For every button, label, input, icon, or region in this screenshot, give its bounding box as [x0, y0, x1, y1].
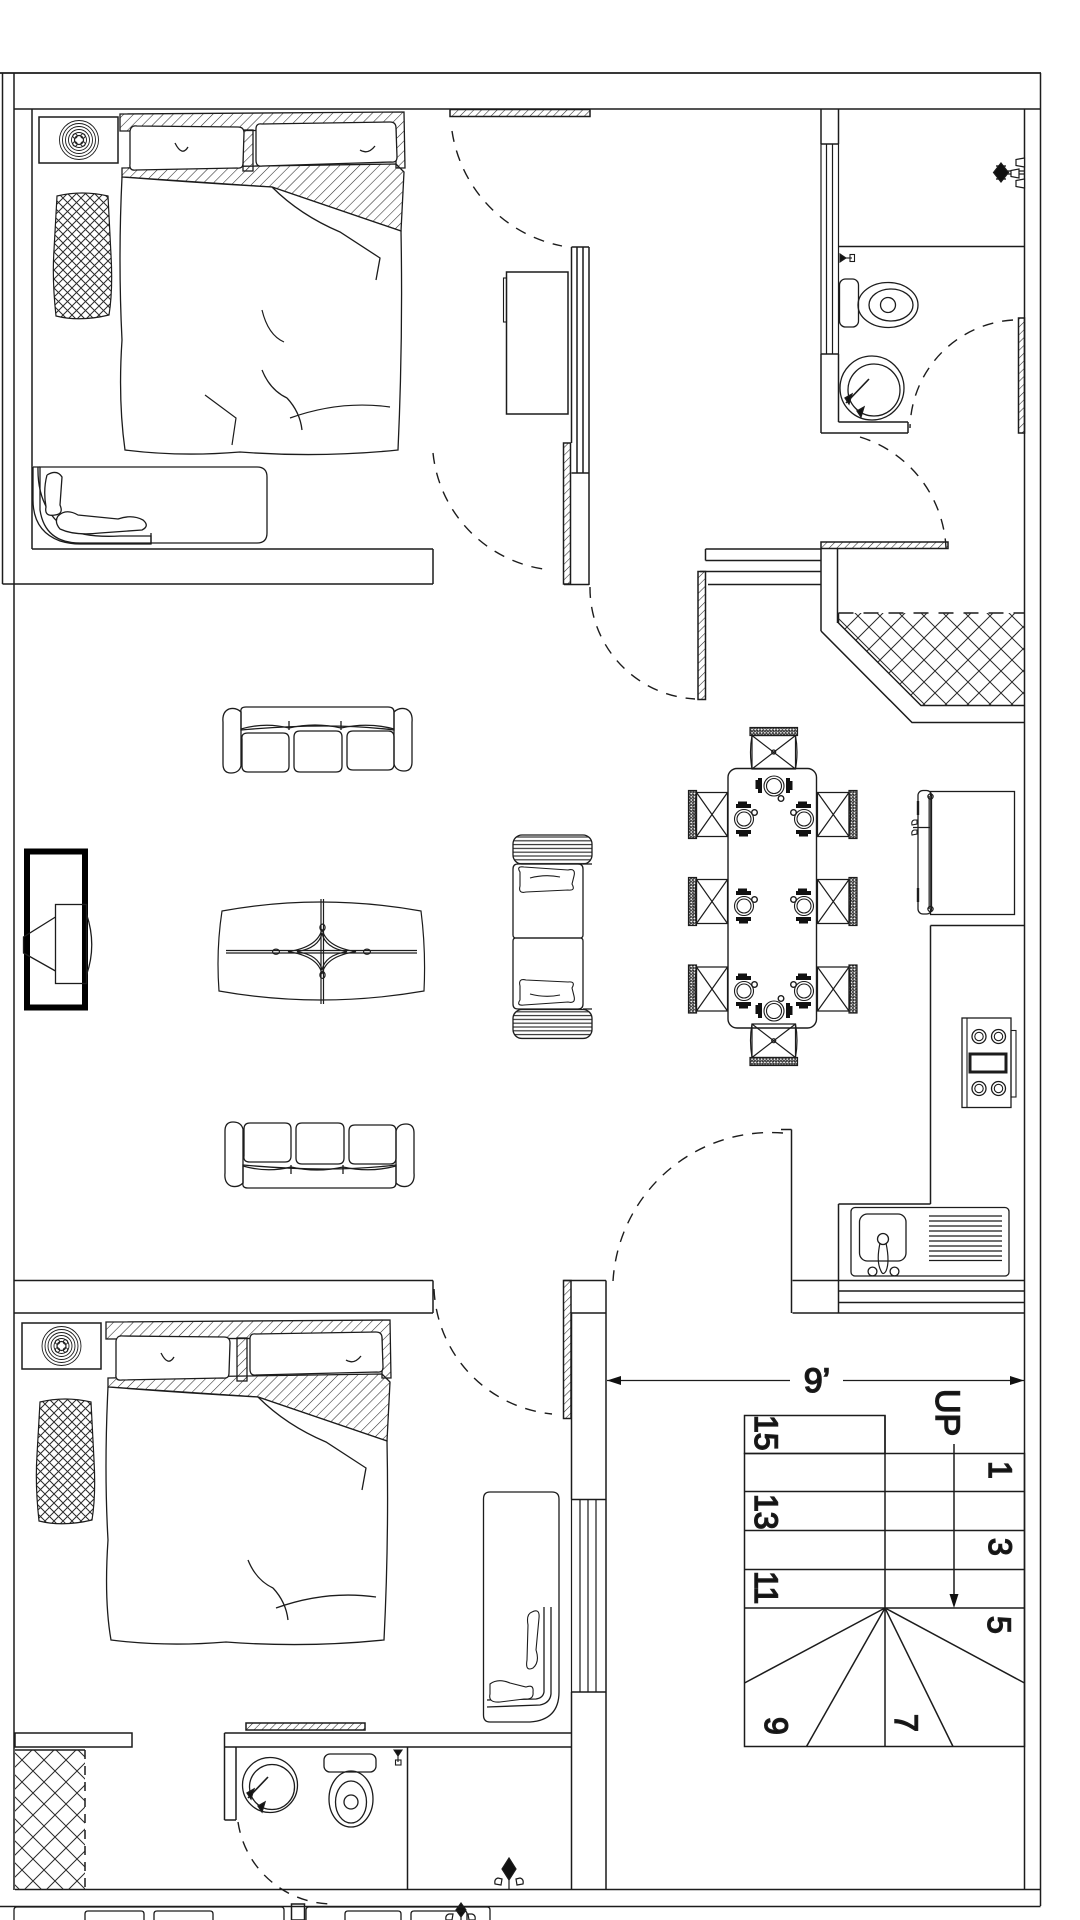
svg-text:3: 3 [982, 1538, 1018, 1556]
svg-text:UP: UP [928, 1389, 966, 1436]
svg-text:7: 7 [888, 1714, 924, 1732]
svg-text:5: 5 [981, 1616, 1017, 1634]
svg-text:11: 11 [748, 1571, 784, 1604]
svg-text:9: 9 [758, 1717, 794, 1735]
svg-text:15: 15 [748, 1415, 784, 1451]
svg-text:9’: 9’ [804, 1362, 830, 1400]
svg-text:13: 13 [748, 1494, 784, 1530]
svg-text:1: 1 [982, 1461, 1018, 1479]
